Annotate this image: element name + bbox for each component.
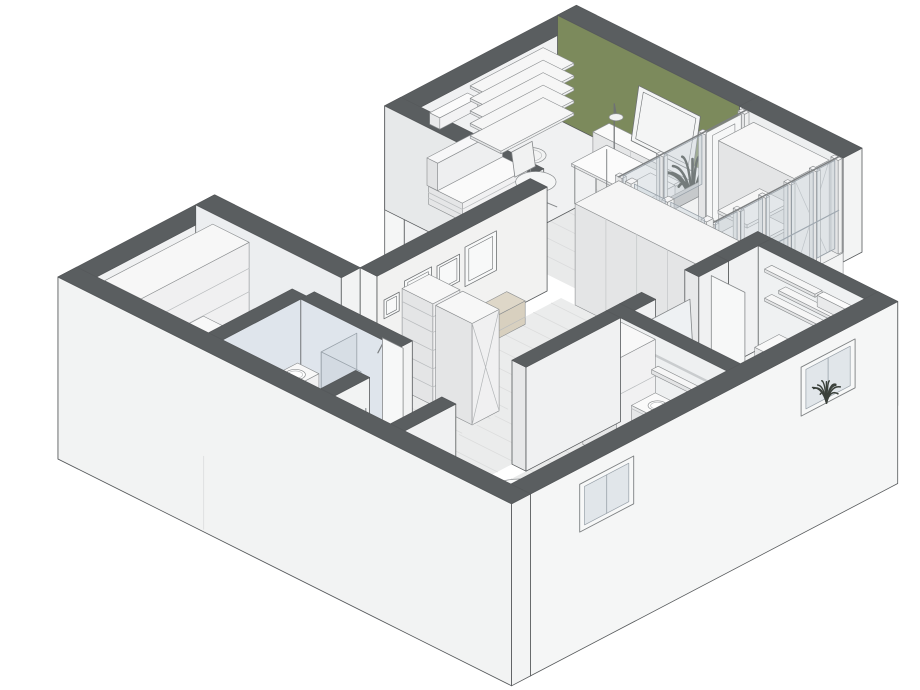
floorplan-render <box>0 0 920 690</box>
balcony-glass-e <box>817 160 835 258</box>
floor-lamp-head <box>609 114 623 121</box>
isometric-apartment-svg <box>0 0 920 690</box>
